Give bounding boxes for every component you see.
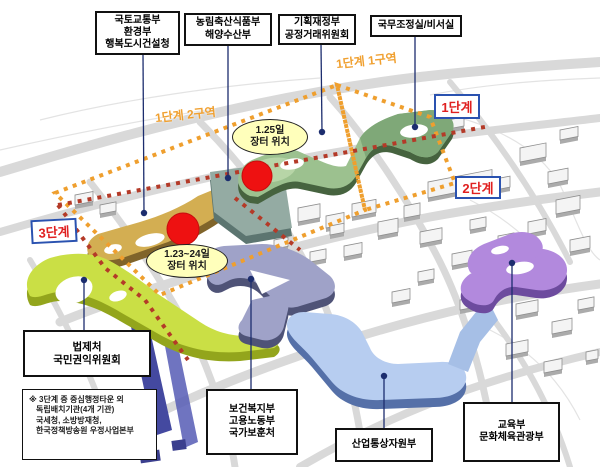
market-oval-jan2324: 1.23~24일 장터 위치 [146,244,228,278]
phase1-badge: 1단계 [434,94,480,119]
phase3-label: 3단계 [38,221,70,242]
phase1-label: 1단계 [441,97,472,116]
label-line: 행복도시건설청 [105,39,169,51]
label-line: 산업통상자원부 [352,439,416,451]
phase3-note-box: ※ 3단계 중 중심행정타운 외 독립배치기관(4개 기관) 국세청, 소방방재… [22,389,157,460]
note-line: 독립배치기관(4개 기관) [29,405,152,415]
label-line: 문화체육관광부 [479,432,543,444]
label-line: 국민권익위원회 [53,354,121,367]
label-box-molit: 국토교통부 환경부 행복도시건설청 [95,11,180,55]
label-box-mohw: 보건복지부 고용노동부 국가보훈처 [206,389,298,455]
label-line: 법제처 [73,341,102,354]
label-line: 공정거래위원회 [285,30,349,42]
market-line: 장터 위치 [167,261,207,274]
market-oval-jan25: 1.25일 장터 위치 [232,119,308,155]
label-line: 보건복지부 [229,404,275,416]
sejong-complex-map: 국토교통부 환경부 행복도시건설청 농림축산식품부 해양수산부 기획재정부 공정… [0,0,600,467]
phase3-badge: 3단계 [30,218,77,244]
label-box-moleg: 법제처 국민권익위원회 [23,330,151,377]
note-line: 한국정책방송원 우정사업본부 [29,426,152,436]
market-line: 1.25일 [256,125,285,138]
label-box-osc: 국무조정실/비서실 [370,15,462,37]
note-line: ※ 3단계 중 중심행정타운 외 [29,395,152,405]
label-line: 환경부 [124,27,152,39]
label-line: 국무조정실/비서실 [378,20,454,32]
label-line: 해양수산부 [205,30,251,42]
phase2-badge: 2단계 [455,176,501,199]
label-box-motie: 산업통상자원부 [335,428,433,462]
market-line: 1.23~24일 [164,249,210,262]
phase2-label: 2단계 [462,178,493,197]
label-box-mafra: 농림축산식품부 해양수산부 [184,13,272,46]
label-line: 국토교통부 [115,15,161,27]
note-line: 국세청, 소방방재청, [29,416,152,426]
label-line: 기획재정부 [294,17,340,29]
market-marker-jan25 [242,161,272,191]
label-box-moe: 교육부 문화체육관광부 [463,402,560,462]
label-line: 교육부 [498,420,526,432]
label-line: 고용노동부 [229,416,275,428]
market-marker-jan2324 [167,213,199,245]
label-line: 국가보훈처 [229,428,275,440]
label-box-moef: 기획재정부 공정거래위원회 [278,14,356,45]
label-line: 농림축산식품부 [196,17,260,29]
market-line: 장터 위치 [250,137,290,150]
